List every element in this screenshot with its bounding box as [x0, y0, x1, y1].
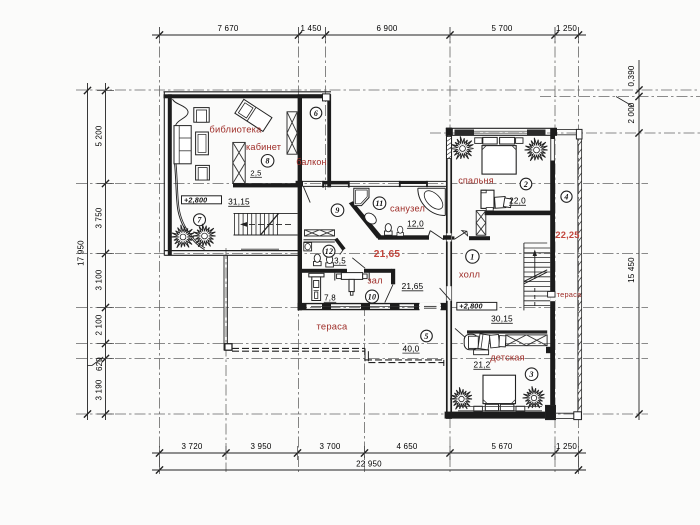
svg-text:5 670: 5 670 [491, 442, 512, 451]
svg-text:детская: детская [490, 353, 525, 363]
svg-text:21,65: 21,65 [402, 281, 424, 291]
svg-text:21,2: 21,2 [474, 360, 491, 370]
svg-text:2 100: 2 100 [95, 314, 104, 335]
svg-text:10: 10 [368, 293, 376, 302]
svg-text:9: 9 [335, 206, 339, 215]
svg-text:4 650: 4 650 [396, 442, 417, 451]
svg-text:40,0: 40,0 [403, 343, 420, 353]
svg-text:3 700: 3 700 [319, 442, 340, 451]
svg-text:1 250: 1 250 [556, 24, 577, 33]
svg-text:+2,800: +2,800 [459, 302, 482, 311]
svg-text:3,5: 3,5 [334, 257, 346, 266]
svg-text:6 900: 6 900 [376, 24, 397, 33]
svg-text:2: 2 [523, 180, 528, 189]
svg-text:2,5: 2,5 [250, 169, 261, 178]
svg-text:балкон: балкон [296, 157, 326, 167]
svg-text:22 950: 22 950 [356, 460, 382, 469]
svg-text:тераса: тераса [317, 321, 349, 332]
svg-text:4: 4 [563, 193, 568, 202]
svg-text:тераса: тераса [557, 290, 582, 299]
svg-text:+2,800: +2,800 [184, 195, 207, 204]
svg-text:библиотека: библиотека [209, 124, 262, 135]
svg-text:3 720: 3 720 [181, 442, 202, 451]
svg-text:620: 620 [95, 357, 104, 371]
svg-text:12: 12 [325, 247, 333, 256]
svg-text:холл: холл [459, 269, 480, 280]
svg-text:8: 8 [265, 157, 269, 166]
svg-text:3: 3 [528, 370, 533, 379]
svg-text:5 700: 5 700 [491, 24, 512, 33]
svg-text:3 190: 3 190 [95, 379, 104, 400]
svg-text:30,15: 30,15 [491, 314, 513, 324]
svg-text:7,8: 7,8 [324, 294, 336, 303]
svg-text:7 670: 7 670 [217, 24, 238, 33]
svg-text:22,25: 22,25 [555, 230, 579, 240]
svg-text:22,0: 22,0 [509, 197, 526, 206]
svg-text:5: 5 [424, 332, 428, 341]
svg-text:11: 11 [376, 199, 384, 208]
svg-text:1 250: 1 250 [556, 442, 577, 451]
svg-text:12,0: 12,0 [407, 220, 424, 229]
svg-text:17 950: 17 950 [77, 240, 86, 266]
svg-text:3 100: 3 100 [95, 269, 104, 290]
svg-text:21,65: 21,65 [374, 249, 401, 260]
svg-text:3 750: 3 750 [95, 207, 104, 228]
svg-text:санузел: санузел [390, 204, 425, 214]
svg-text:1 450: 1 450 [300, 24, 321, 33]
svg-text:1: 1 [470, 252, 474, 261]
svg-text:0,390: 0,390 [627, 65, 636, 86]
svg-text:3 950: 3 950 [250, 442, 271, 451]
svg-text:спальня: спальня [458, 176, 494, 186]
svg-text:15 450: 15 450 [627, 257, 636, 283]
svg-text:кабинет: кабинет [246, 142, 282, 152]
svg-text:31,15: 31,15 [228, 197, 250, 207]
svg-text:зал: зал [367, 276, 382, 286]
svg-text:6: 6 [314, 109, 318, 118]
svg-text:5 200: 5 200 [95, 125, 104, 146]
